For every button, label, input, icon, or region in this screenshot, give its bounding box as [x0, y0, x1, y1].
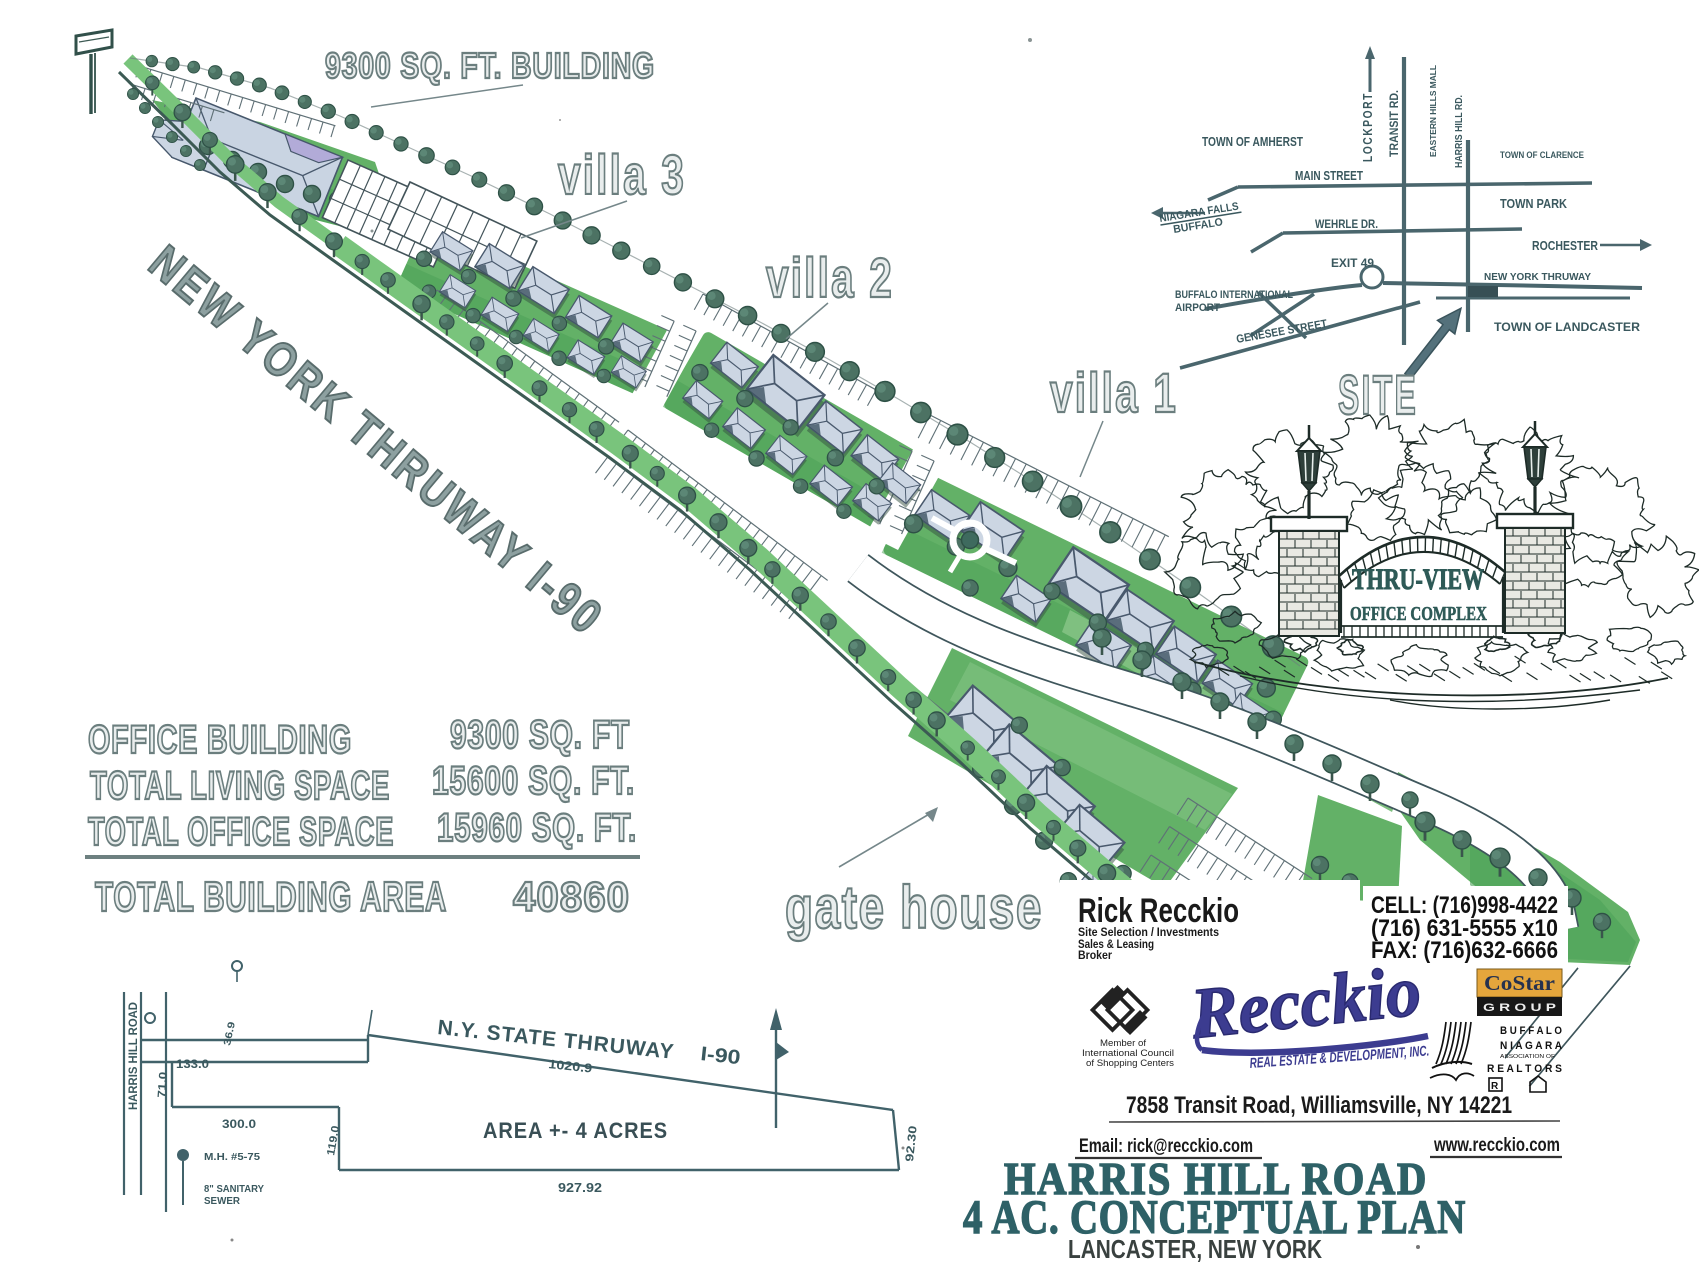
svg-text:TOWN OF LANDCASTER: TOWN OF LANDCASTER — [1494, 322, 1641, 334]
svg-text:Member of: Member of — [1100, 1038, 1147, 1048]
svg-text:15600 SQ. FT.: 15600 SQ. FT. — [432, 759, 635, 803]
svg-text:40860: 40860 — [513, 873, 630, 920]
svg-text:300.0: 300.0 — [222, 1119, 256, 1131]
svg-text:9300 SQ. FT. BUILDING: 9300 SQ. FT. BUILDING — [325, 45, 655, 86]
svg-text:SEWER: SEWER — [204, 1195, 240, 1207]
svg-text:NEW YORK THRUWAY: NEW YORK THRUWAY — [1484, 271, 1591, 283]
svg-text:TOWN PARK: TOWN PARK — [1500, 197, 1567, 211]
svg-text:ROCHESTER: ROCHESTER — [1532, 239, 1598, 253]
svg-text:ASSOCIATION OF: ASSOCIATION OF — [1500, 1054, 1555, 1060]
svg-text:9300 SQ. FT: 9300 SQ. FT — [450, 713, 630, 757]
svg-text:www.recckio.com: www.recckio.com — [1433, 1135, 1560, 1156]
svg-text:AREA +- 4 ACRES: AREA +- 4 ACRES — [483, 1118, 668, 1143]
svg-text:CoStar: CoStar — [1484, 971, 1555, 995]
svg-text:LOCKPORT: LOCKPORT — [1361, 92, 1375, 162]
svg-text:villa 3: villa 3 — [558, 143, 686, 206]
svg-text:LANCASTER, NEW YORK: LANCASTER, NEW YORK — [1068, 1234, 1322, 1263]
svg-text:7858 Transit Road, Williamsvil: 7858 Transit Road, Williamsville, NY 142… — [1126, 1092, 1512, 1119]
svg-text:AIRPORT: AIRPORT — [1175, 302, 1220, 314]
svg-text:BUFFALO INTERNATIONAL: BUFFALO INTERNATIONAL — [1175, 289, 1293, 301]
svg-text:gate house: gate house — [785, 874, 1043, 941]
svg-text:HARRIS HILL ROAD: HARRIS HILL ROAD — [128, 1002, 140, 1110]
svg-text:International Council: International Council — [1082, 1048, 1174, 1058]
svg-text:TOTAL BUILDING AREA: TOTAL BUILDING AREA — [95, 873, 447, 920]
svg-text:I-90: I-90 — [699, 1043, 741, 1069]
svg-text:OFFICE COMPLEX: OFFICE COMPLEX — [1350, 603, 1487, 625]
svg-text:8" SANITARY: 8" SANITARY — [204, 1183, 264, 1195]
svg-text:TOTAL LIVING SPACE: TOTAL LIVING SPACE — [90, 764, 390, 808]
svg-text:MAIN STREET: MAIN STREET — [1295, 169, 1363, 183]
svg-text:of Shopping Centers: of Shopping Centers — [1086, 1058, 1175, 1068]
svg-text:927.92: 927.92 — [558, 1181, 602, 1195]
svg-text:15960 SQ. FT.: 15960 SQ. FT. — [437, 806, 637, 850]
svg-text:villa 1: villa 1 — [1050, 361, 1178, 424]
svg-text:TOTAL OFFICE SPACE: TOTAL OFFICE SPACE — [88, 810, 394, 854]
svg-text:SITE: SITE — [1338, 363, 1418, 426]
svg-text:THRU-VIEW: THRU-VIEW — [1352, 563, 1484, 596]
svg-text:TOWN OF CLARENCE: TOWN OF CLARENCE — [1500, 150, 1584, 161]
svg-text:TOWN OF AMHERST: TOWN OF AMHERST — [1202, 135, 1303, 149]
svg-text:villa 2: villa 2 — [766, 246, 894, 309]
svg-text:N I A G A R A: N I A G A R A — [1500, 1040, 1562, 1052]
svg-text:HARRIS HILL RD.: HARRIS HILL RD. — [1453, 95, 1465, 168]
svg-text:133.0: 133.0 — [176, 1059, 209, 1071]
svg-text:OFFICE BUILDING: OFFICE BUILDING — [88, 718, 352, 762]
svg-text:M.H. #5-75: M.H. #5-75 — [204, 1151, 260, 1163]
svg-text:71.0: 71.0 — [156, 1071, 170, 1098]
svg-text:R: R — [1491, 1081, 1499, 1092]
svg-text:TRANSIT RD.: TRANSIT RD. — [1387, 90, 1401, 157]
svg-text:Broker: Broker — [1078, 948, 1112, 962]
svg-text:WEHRLE DR.: WEHRLE DR. — [1315, 217, 1378, 231]
svg-text:EXIT 49: EXIT 49 — [1331, 258, 1374, 270]
svg-text:B U F F A L O: B U F F A L O — [1500, 1025, 1562, 1037]
svg-text:EASTERN HILLS MALL: EASTERN HILLS MALL — [1428, 65, 1438, 157]
svg-text:G R O U P: G R O U P — [1483, 1002, 1556, 1014]
svg-text:R E A L T O R S: R E A L T O R S — [1487, 1063, 1562, 1075]
